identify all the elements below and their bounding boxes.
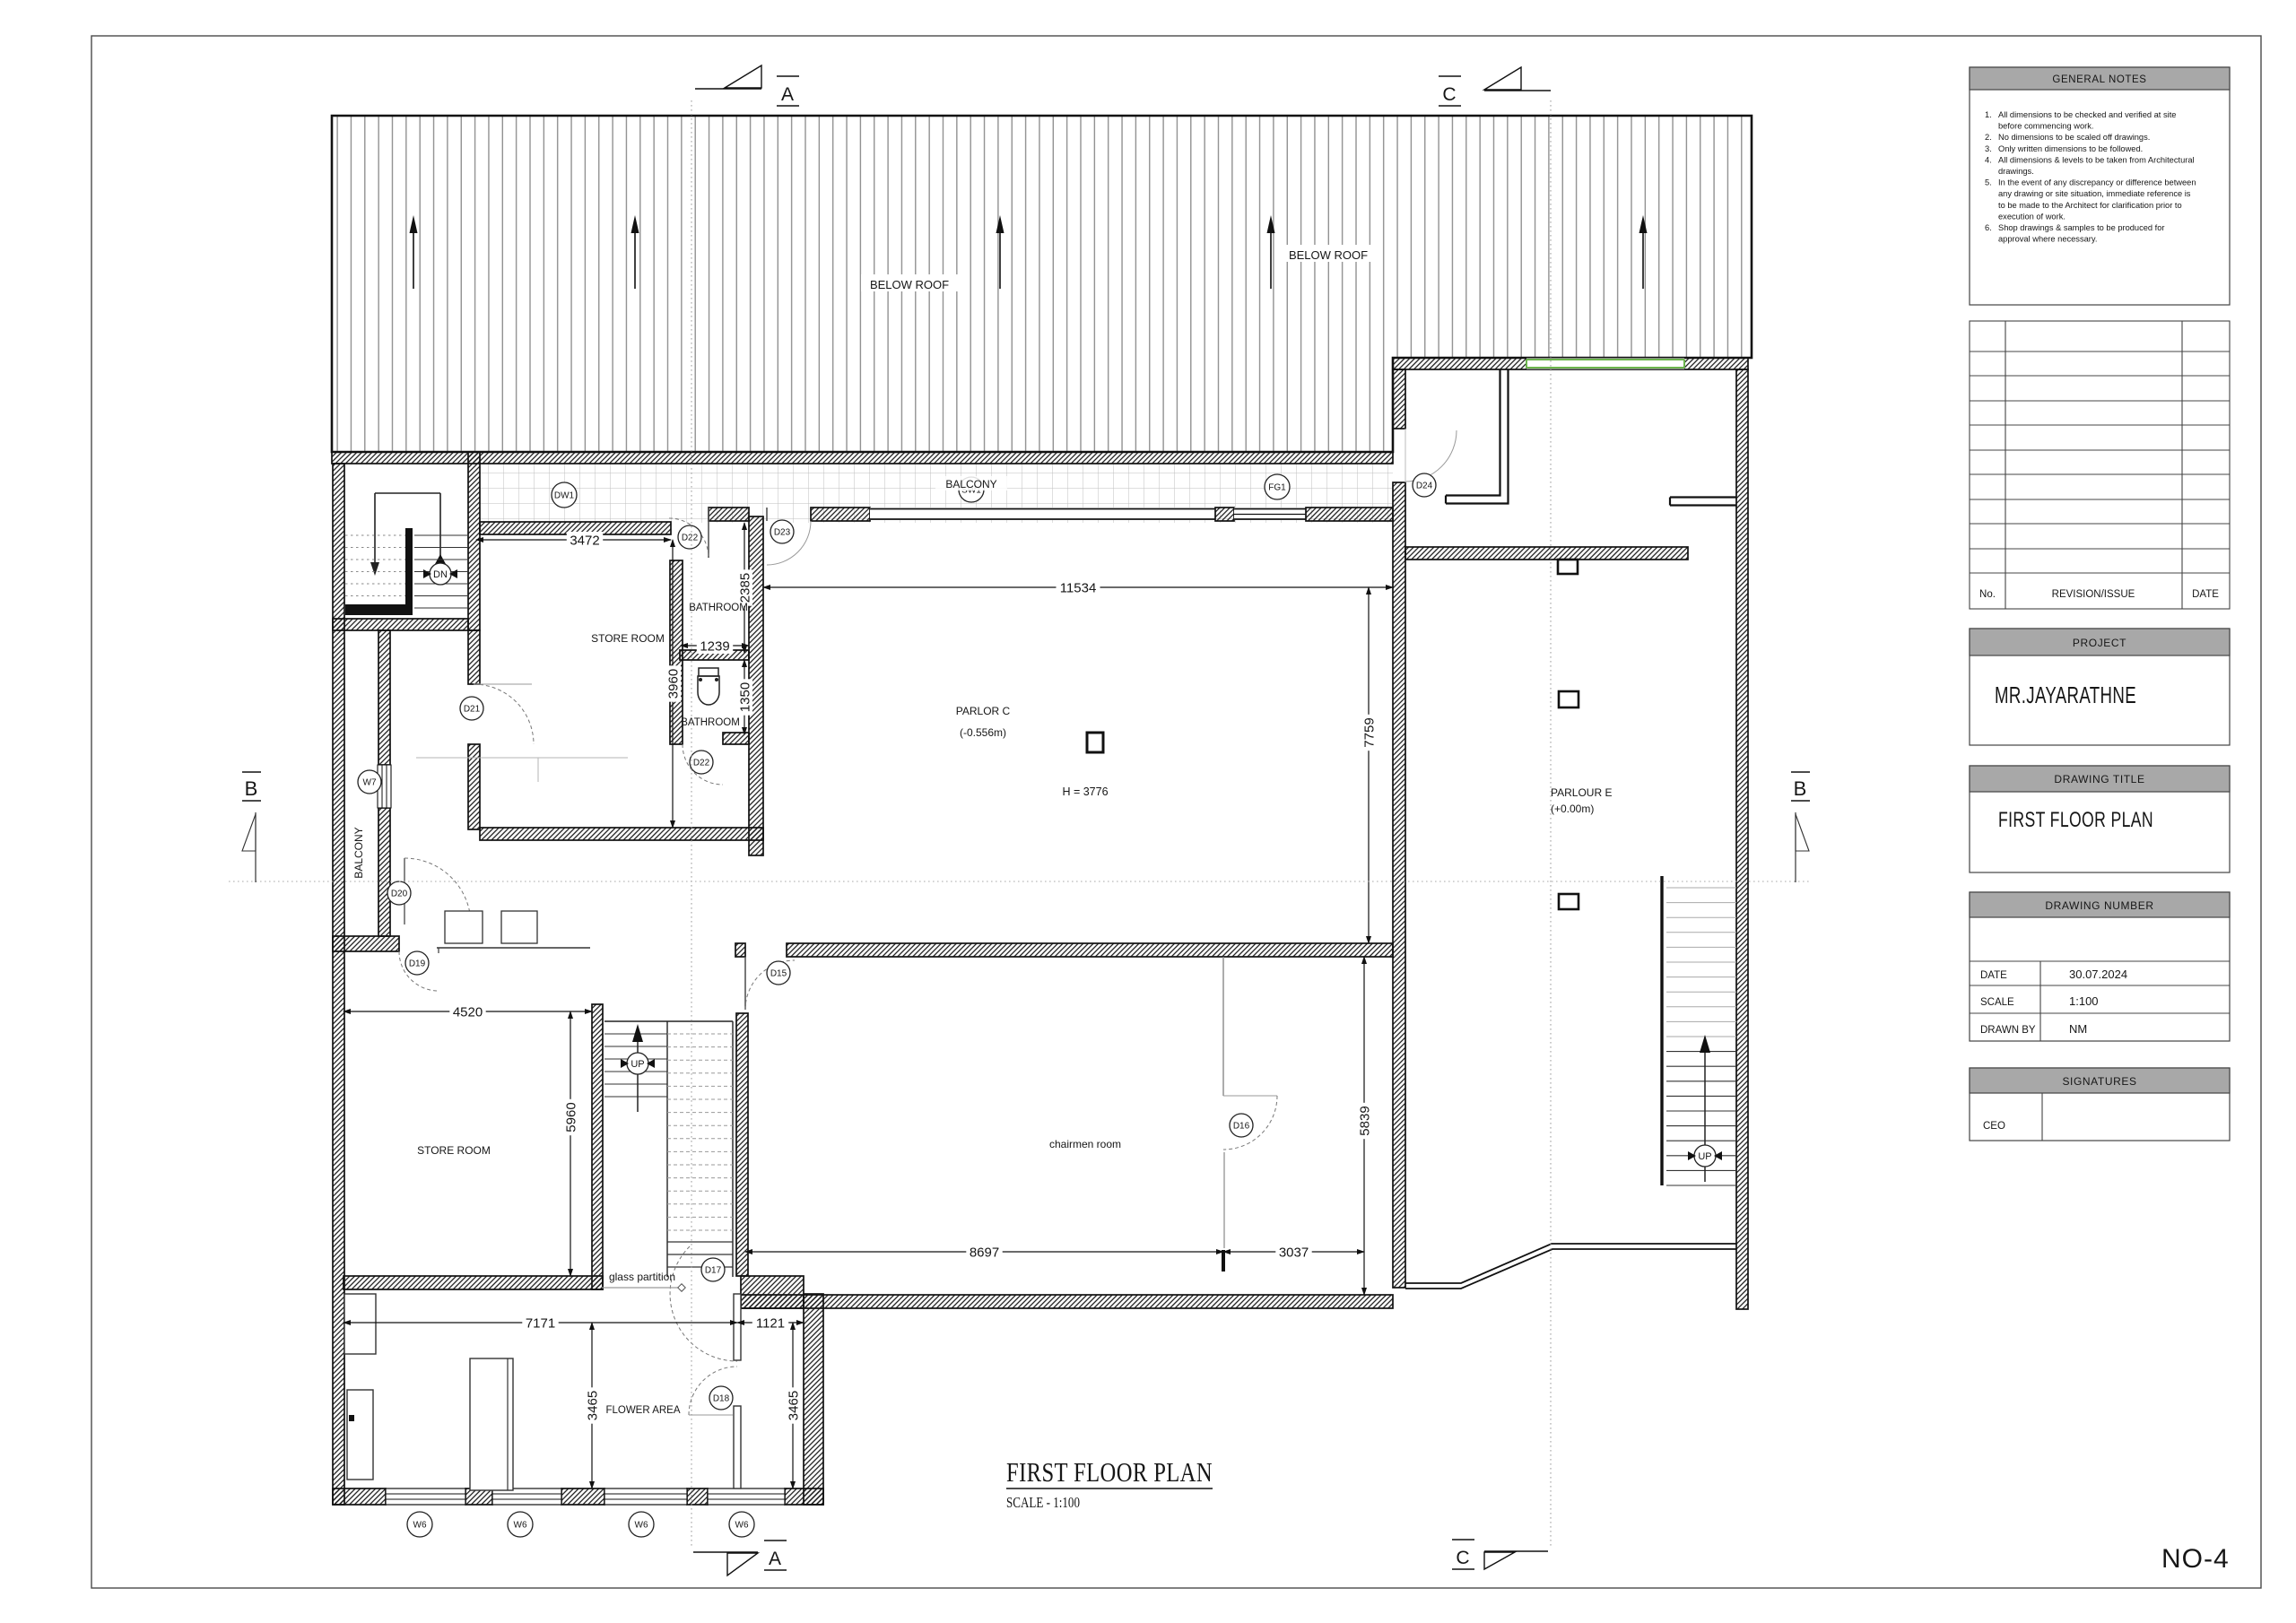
svg-text:3465: 3465 xyxy=(787,1391,802,1420)
svg-text:D16: D16 xyxy=(1233,1122,1250,1132)
svg-text:6.: 6. xyxy=(1985,223,1992,232)
svg-text:PARLOR C: PARLOR C xyxy=(956,705,1011,717)
svg-text:All dimensions & levels to be: All dimensions & levels to be taken from… xyxy=(1998,155,2195,164)
svg-text:D22: D22 xyxy=(682,534,699,543)
svg-text:5.: 5. xyxy=(1985,178,1992,187)
svg-text:D15: D15 xyxy=(770,969,787,979)
svg-text:BELOW ROOF: BELOW ROOF xyxy=(1289,248,1368,262)
svg-text:chairmen room: chairmen room xyxy=(1049,1138,1121,1150)
svg-text:DN: DN xyxy=(433,569,448,580)
svg-text:No.: No. xyxy=(1979,589,1996,600)
svg-text:D20: D20 xyxy=(391,890,408,899)
svg-text:7759: 7759 xyxy=(1362,717,1378,747)
svg-text:4.: 4. xyxy=(1985,155,1992,164)
svg-text:1121: 1121 xyxy=(756,1316,785,1332)
svg-text:A: A xyxy=(781,84,794,105)
svg-text:D21: D21 xyxy=(464,705,481,715)
svg-text:UP: UP xyxy=(631,1059,644,1070)
svg-text:2385: 2385 xyxy=(738,573,753,603)
svg-text:1350: 1350 xyxy=(738,682,753,712)
svg-text:H = 3776: H = 3776 xyxy=(1062,785,1108,798)
svg-text:C: C xyxy=(1442,84,1456,105)
svg-text:BATHROOM: BATHROOM xyxy=(689,603,748,613)
svg-text:D17: D17 xyxy=(705,1266,722,1276)
svg-text:drawings.: drawings. xyxy=(1998,167,2034,176)
svg-text:MR.JAYARATHNE: MR.JAYARATHNE xyxy=(1995,681,2136,708)
svg-text:(+0.00m): (+0.00m) xyxy=(1551,803,1594,815)
svg-text:30.07.2024: 30.07.2024 xyxy=(2069,968,2127,981)
svg-text:FIRST FLOOR PLAN: FIRST FLOOR PLAN xyxy=(1006,1456,1213,1488)
svg-text:W6: W6 xyxy=(735,1521,749,1531)
svg-text:DATE: DATE xyxy=(1980,970,2007,981)
svg-text:FG1: FG1 xyxy=(1268,483,1286,493)
svg-text:FLOWER AREA: FLOWER AREA xyxy=(605,1405,680,1416)
svg-text:PARLOUR E: PARLOUR E xyxy=(1551,786,1612,799)
svg-text:SCALE: SCALE xyxy=(1980,997,2014,1008)
svg-text:W6: W6 xyxy=(514,1521,527,1531)
svg-text:NO-4: NO-4 xyxy=(2161,1544,2230,1574)
svg-text:Only written dimensions to be: Only written dimensions to be followed. xyxy=(1998,144,2143,153)
svg-text:In the event of any discrepanc: In the event of any discrepancy or diffe… xyxy=(1998,178,2196,187)
svg-text:No dimensions to be scaled off: No dimensions to be scaled off drawings. xyxy=(1998,133,2150,142)
svg-text:7171: 7171 xyxy=(526,1316,555,1332)
svg-text:3960: 3960 xyxy=(666,669,682,699)
svg-text:3472: 3472 xyxy=(570,534,599,549)
svg-text:3465: 3465 xyxy=(586,1391,601,1420)
svg-text:GENERAL NOTES: GENERAL NOTES xyxy=(2052,74,2146,85)
svg-text:B: B xyxy=(1794,777,1807,800)
svg-text:W6: W6 xyxy=(635,1521,648,1531)
svg-text:execution of work.: execution of work. xyxy=(1998,212,2066,221)
svg-text:SIGNATURES: SIGNATURES xyxy=(2062,1075,2136,1088)
svg-text:PROJECT: PROJECT xyxy=(2073,637,2126,649)
svg-text:B: B xyxy=(245,777,258,800)
svg-text:UP: UP xyxy=(1698,1151,1711,1162)
svg-text:W6: W6 xyxy=(413,1521,427,1531)
svg-text:D22: D22 xyxy=(693,759,710,768)
svg-text:to be made to the Architect fo: to be made to the Architect for clarific… xyxy=(1998,201,2182,210)
svg-text:3.: 3. xyxy=(1985,144,1992,153)
svg-text:DRAWN BY: DRAWN BY xyxy=(1980,1025,2036,1036)
svg-text:STORE ROOM: STORE ROOM xyxy=(591,632,665,645)
svg-text:REVISION/ISSUE: REVISION/ISSUE xyxy=(2052,589,2135,600)
svg-text:2.: 2. xyxy=(1985,133,1992,142)
svg-text:5960: 5960 xyxy=(564,1102,579,1132)
svg-text:(-0.556m): (-0.556m) xyxy=(960,726,1006,739)
svg-text:1239: 1239 xyxy=(700,639,729,655)
svg-text:BATHROOM: BATHROOM xyxy=(681,717,740,728)
svg-text:1:100: 1:100 xyxy=(2069,994,2099,1008)
svg-text:BALCONY: BALCONY xyxy=(945,478,996,490)
svg-text:8697: 8697 xyxy=(970,1245,999,1261)
svg-text:FIRST FLOOR PLAN: FIRST FLOOR PLAN xyxy=(1998,808,2153,832)
svg-text:approval where necessary.: approval where necessary. xyxy=(1998,235,2097,244)
svg-text:3037: 3037 xyxy=(1279,1245,1309,1261)
svg-text:A: A xyxy=(769,1549,781,1569)
svg-text:All dimensions to be checked a: All dimensions to be checked and verifie… xyxy=(1998,110,2176,119)
svg-text:BELOW ROOF: BELOW ROOF xyxy=(870,278,949,291)
svg-text:D24: D24 xyxy=(1416,482,1433,491)
svg-text:NM: NM xyxy=(2069,1022,2087,1036)
svg-text:CEO: CEO xyxy=(1983,1121,2005,1132)
svg-text:DATE: DATE xyxy=(2192,589,2219,600)
svg-text:SCALE - 1:100: SCALE - 1:100 xyxy=(1006,1494,1080,1511)
svg-text:W7: W7 xyxy=(363,778,377,788)
svg-text:any drawing or site situation,: any drawing or site situation, immediate… xyxy=(1998,189,2191,198)
svg-text:4520: 4520 xyxy=(453,1005,483,1020)
svg-text:C: C xyxy=(1456,1548,1469,1568)
svg-text:Shop drawings & samples to be: Shop drawings & samples to be produced f… xyxy=(1998,223,2165,232)
svg-text:5839: 5839 xyxy=(1358,1106,1373,1135)
svg-text:glass partition: glass partition xyxy=(609,1271,675,1283)
svg-text:D19: D19 xyxy=(409,959,426,969)
svg-text:1.: 1. xyxy=(1985,110,1992,119)
svg-text:DRAWING TITLE: DRAWING TITLE xyxy=(2054,773,2144,785)
svg-text:D23: D23 xyxy=(774,528,791,538)
svg-text:BALCONY: BALCONY xyxy=(352,827,365,878)
svg-text:before commencing work.: before commencing work. xyxy=(1998,122,2093,131)
svg-text:D18: D18 xyxy=(713,1394,730,1404)
svg-text:DW1: DW1 xyxy=(554,491,575,501)
svg-text:DRAWING NUMBER: DRAWING NUMBER xyxy=(2045,899,2153,912)
svg-text:11534: 11534 xyxy=(1060,581,1097,596)
svg-text:STORE ROOM: STORE ROOM xyxy=(417,1144,491,1157)
